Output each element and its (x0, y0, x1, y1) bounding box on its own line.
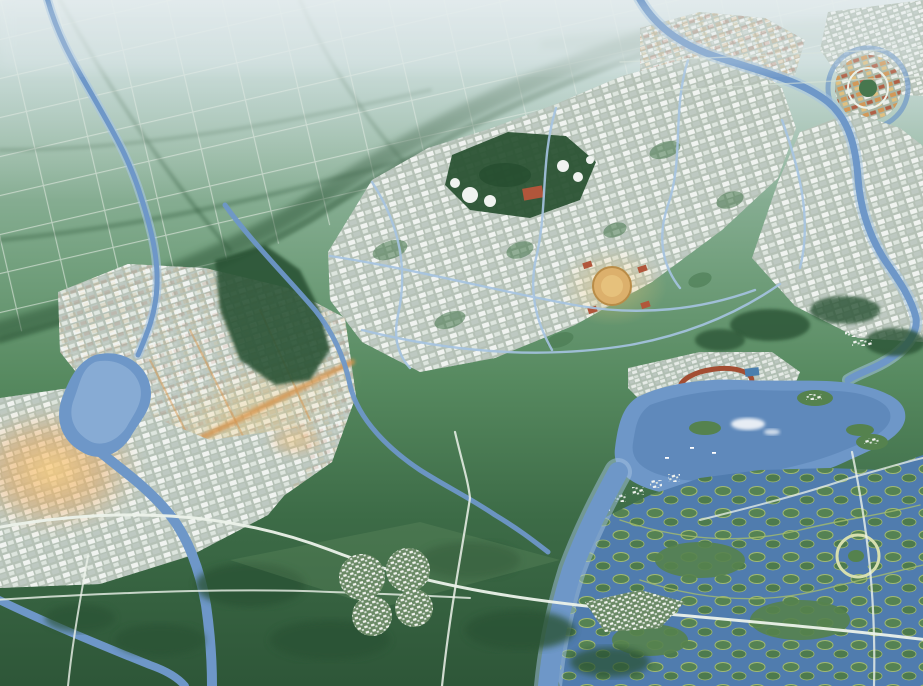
village-houses (352, 596, 392, 636)
pond-islet (848, 550, 864, 562)
aerial-city-render (0, 0, 923, 686)
island-resort (864, 438, 879, 444)
forest-patch (465, 610, 575, 650)
pier-village (650, 480, 662, 488)
dome-pavilion (450, 178, 460, 188)
village-green (859, 79, 877, 97)
island-resort (806, 394, 822, 400)
forest-patch (695, 329, 745, 351)
forest-patch (115, 624, 205, 656)
sunset-glow-small (265, 422, 325, 458)
cloud-reflection (764, 429, 780, 435)
forest-patch (865, 328, 923, 356)
riverside-houses (845, 330, 867, 337)
boat (665, 457, 669, 459)
plaza-center (601, 275, 623, 297)
boat (690, 447, 694, 449)
dome-pavilion (573, 172, 583, 182)
pier-village (632, 487, 644, 495)
village-houses (395, 589, 433, 627)
park-shade (479, 163, 531, 187)
village-houses (339, 554, 385, 600)
lake-island (689, 421, 721, 435)
village-houses (386, 548, 430, 592)
pier-village (668, 474, 680, 482)
forest-patch (810, 296, 880, 324)
forest-patch (570, 647, 650, 677)
blue-roof-hall (745, 367, 760, 377)
cloud-reflection (731, 418, 765, 430)
dome-pavilion (586, 156, 594, 164)
horizon-haze (0, 0, 923, 70)
wetland-island (655, 542, 745, 578)
dome-pavilion (484, 195, 496, 207)
dome-pavilion (557, 160, 569, 172)
golden-plaza (557, 246, 667, 326)
forest-patch (45, 604, 115, 632)
wetland-island (750, 600, 850, 640)
riverside-houses (852, 340, 872, 346)
dome-pavilion (462, 187, 478, 203)
scene-canvas (0, 0, 923, 686)
boat (712, 452, 716, 454)
